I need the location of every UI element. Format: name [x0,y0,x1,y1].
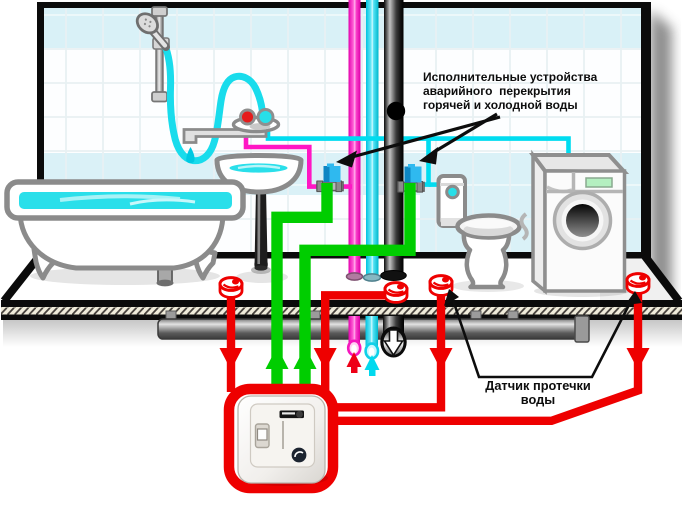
svg-text:горячей и холодной воды: горячей и холодной воды [423,98,578,112]
svg-text:Датчик протечки: Датчик протечки [485,378,591,393]
svg-text:Исполнительные устройства: Исполнительные устройства [423,70,598,84]
svg-text:воды: воды [521,392,555,407]
svg-text:аварийного перекрытия: аварийного перекрытия [423,84,571,98]
